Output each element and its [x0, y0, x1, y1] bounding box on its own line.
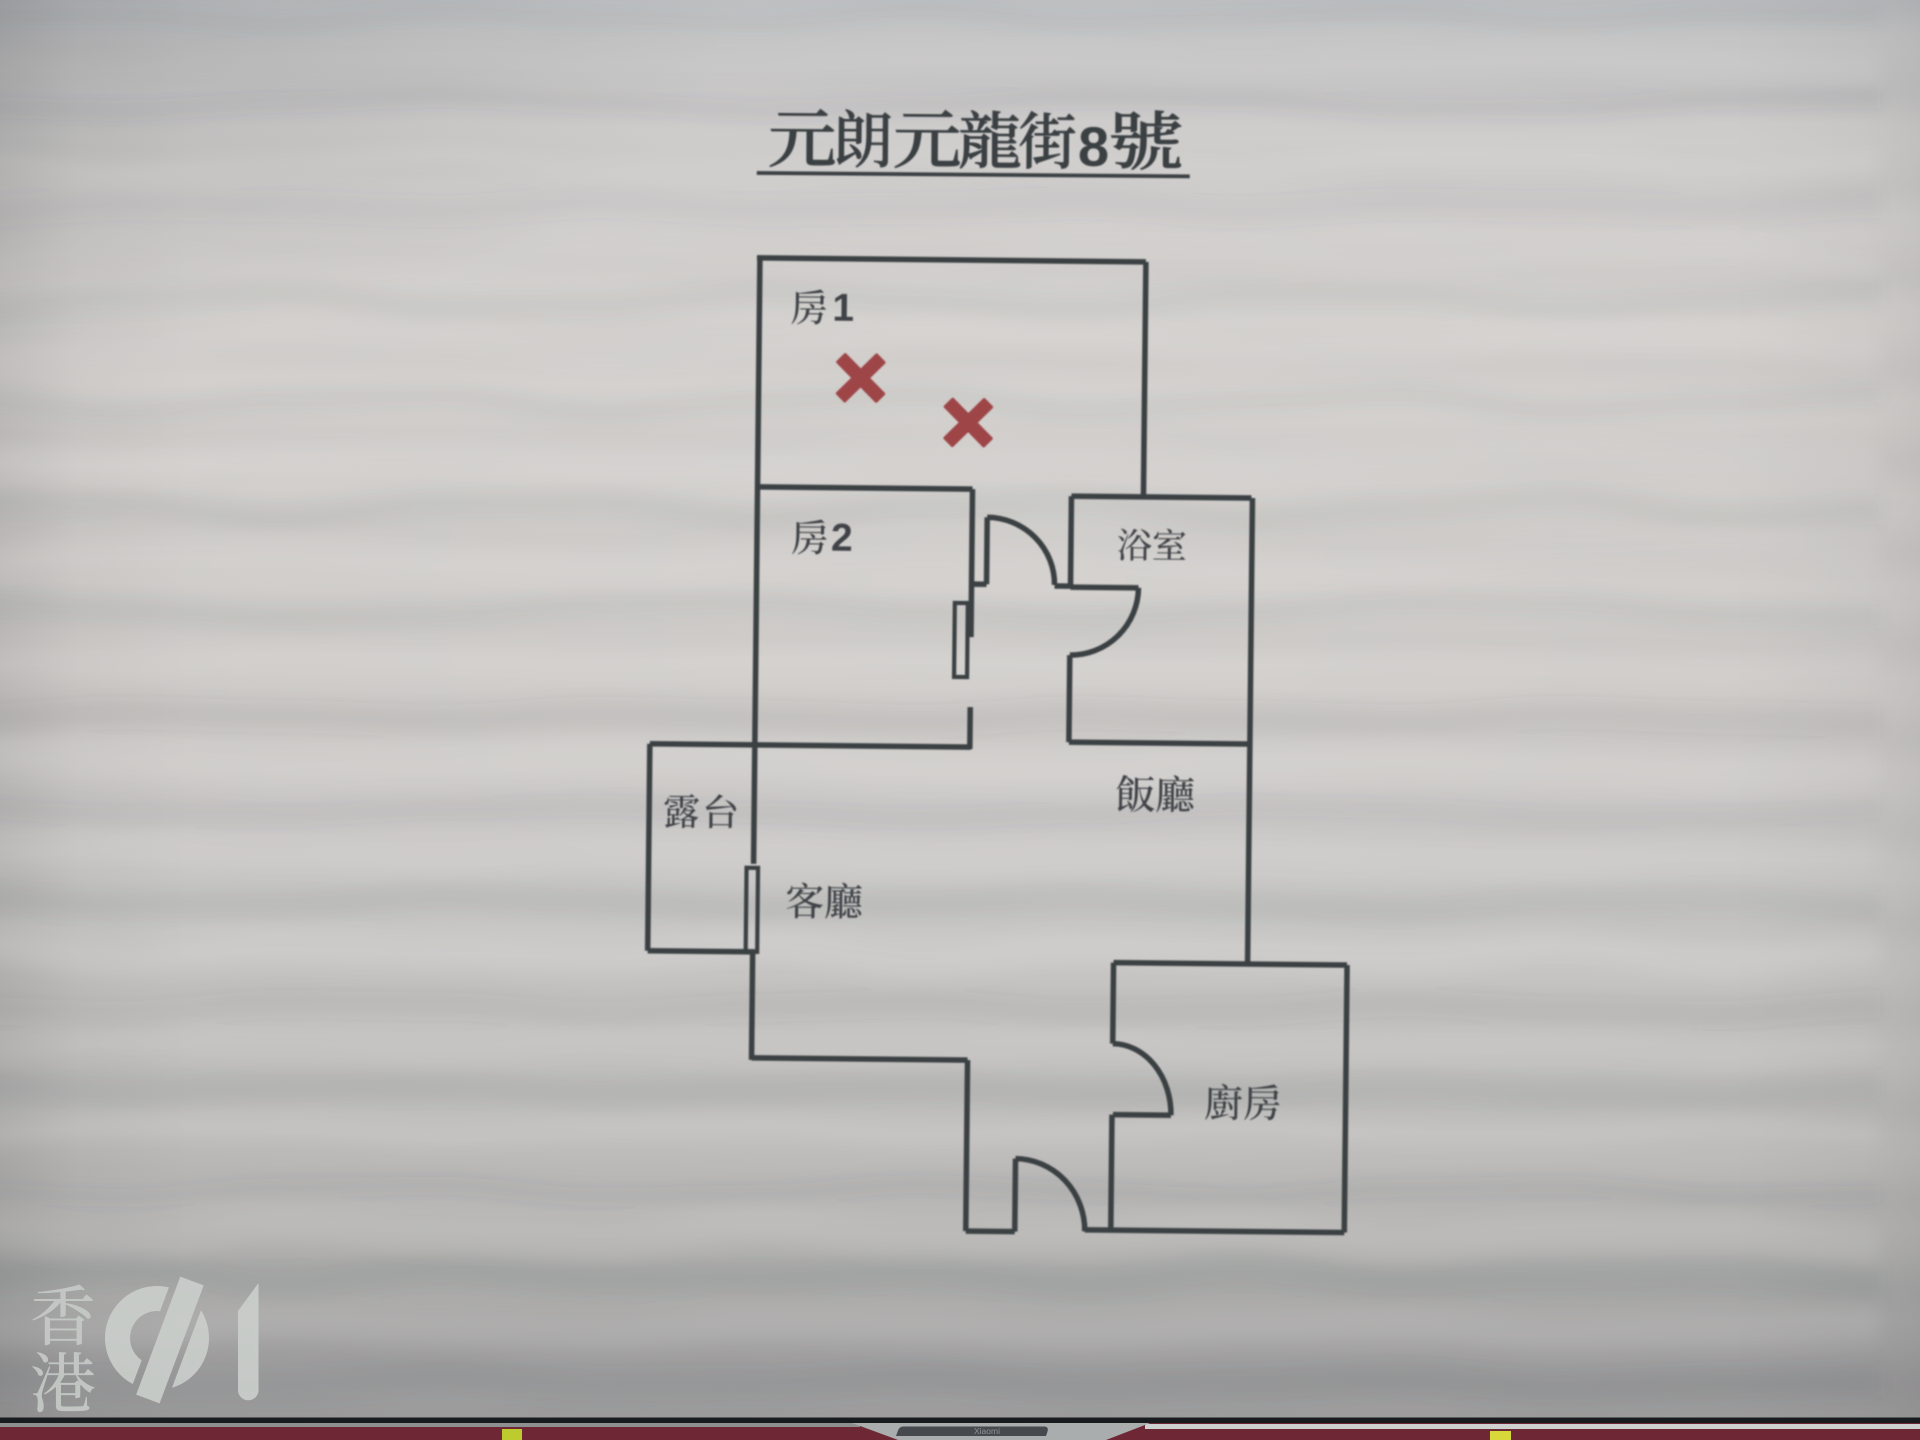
svg-text:Xiaomi: Xiaomi — [974, 1426, 1000, 1436]
svg-text:1: 1 — [832, 287, 854, 330]
svg-text:2: 2 — [831, 517, 853, 560]
svg-text:8: 8 — [1078, 115, 1110, 178]
